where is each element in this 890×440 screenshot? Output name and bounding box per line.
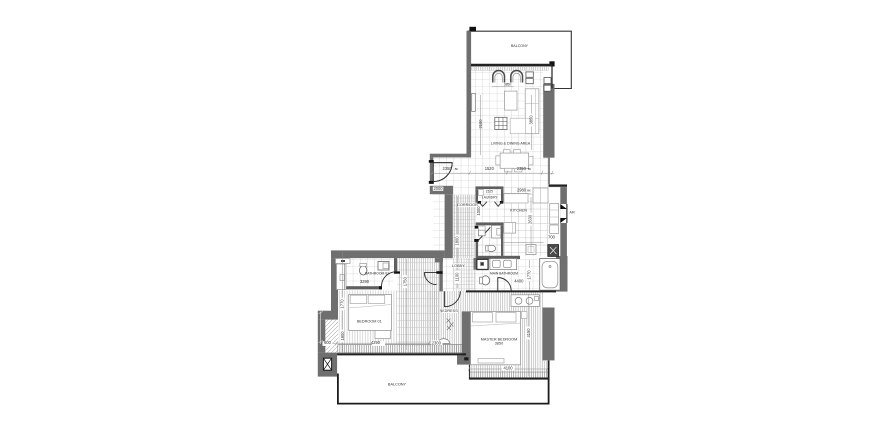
svg-text:KITCHEN: KITCHEN xyxy=(510,209,527,213)
svg-text:1800: 1800 xyxy=(454,236,459,246)
svg-text:1000: 1000 xyxy=(476,206,481,216)
svg-text:3850: 3850 xyxy=(495,342,503,346)
svg-text:BALCONY: BALCONY xyxy=(511,44,529,48)
svg-text:BK: BK xyxy=(455,167,459,171)
svg-text:2000: 2000 xyxy=(433,186,443,191)
svg-text:LAUNDRY: LAUNDRY xyxy=(482,196,498,200)
svg-text:BATHROOM 01: BATHROOM 01 xyxy=(365,271,389,275)
svg-text:4400: 4400 xyxy=(514,279,524,284)
svg-text:AIR: AIR xyxy=(570,211,576,215)
svg-text:BK: BK xyxy=(528,167,532,171)
svg-text:2100: 2100 xyxy=(478,119,483,129)
svg-text:MAIN BATHROOM: MAIN BATHROOM xyxy=(490,272,518,276)
svg-text:LIVING & DINING AREA: LIVING & DINING AREA xyxy=(491,142,531,146)
svg-text:BEDROOM 01: BEDROOM 01 xyxy=(357,319,382,323)
svg-text:1520: 1520 xyxy=(485,166,495,171)
svg-text:LOBBY: LOBBY xyxy=(452,264,465,268)
svg-text:2300: 2300 xyxy=(432,340,442,345)
svg-text:BALCONY: BALCONY xyxy=(388,383,407,387)
svg-text:1100: 1100 xyxy=(454,272,459,282)
svg-text:3850: 3850 xyxy=(504,82,511,86)
svg-text:600: 600 xyxy=(324,340,332,345)
svg-text:3290: 3290 xyxy=(360,279,370,284)
svg-text:1770: 1770 xyxy=(527,270,532,280)
svg-text:4150: 4150 xyxy=(526,328,531,338)
svg-text:2350: 2350 xyxy=(517,166,527,171)
svg-text:3850: 3850 xyxy=(529,115,534,125)
svg-text:W.DRESS: W.DRESS xyxy=(440,309,458,313)
svg-text:4290: 4290 xyxy=(371,340,381,345)
svg-text:2980: 2980 xyxy=(517,187,527,192)
svg-text:1525: 1525 xyxy=(486,190,493,194)
svg-text:BK: BK xyxy=(527,188,531,192)
svg-text:2630: 2630 xyxy=(527,214,532,224)
svg-text:1800: 1800 xyxy=(340,331,345,341)
svg-text:1770: 1770 xyxy=(340,299,345,309)
svg-text:700: 700 xyxy=(548,235,556,240)
svg-text:4100: 4100 xyxy=(503,366,513,371)
svg-text:1750: 1750 xyxy=(403,276,408,286)
svg-text:2350: 2350 xyxy=(442,166,452,171)
